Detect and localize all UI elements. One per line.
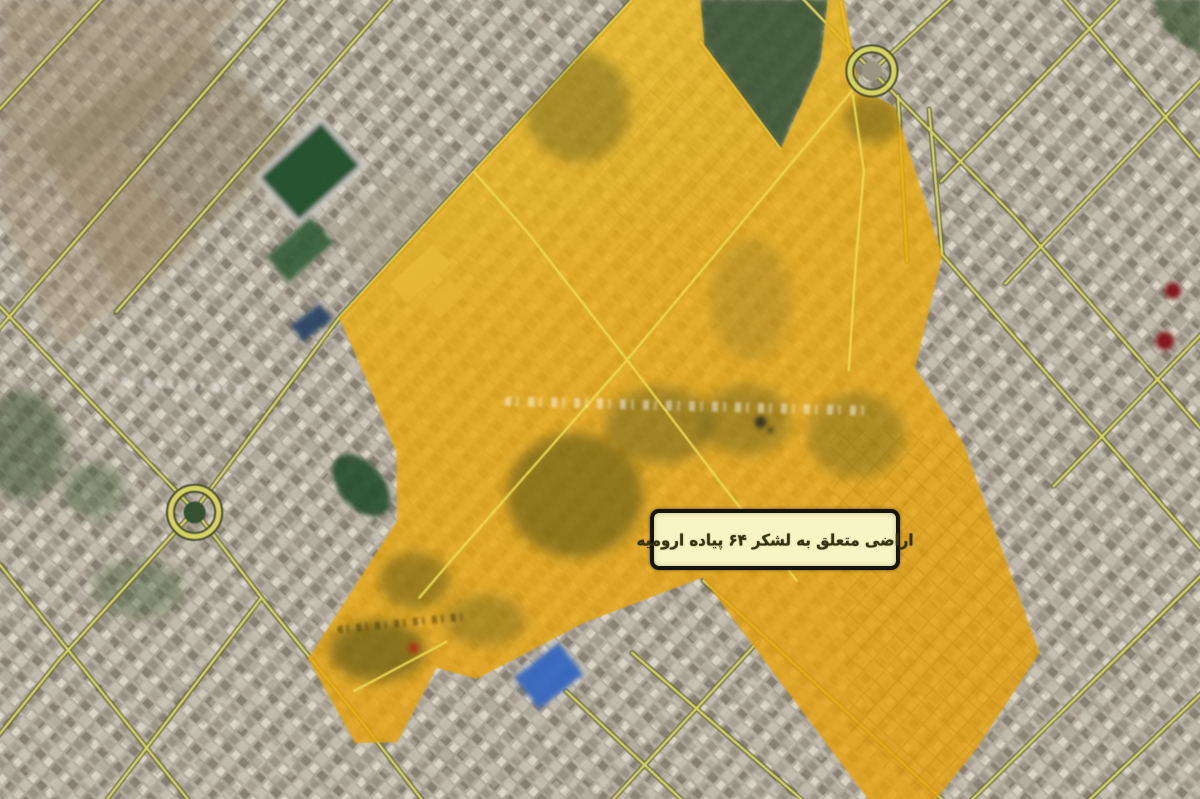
noise-overlay bbox=[0, 0, 1200, 799]
land-ownership-label: اراضی متعلق به لشکر ۶۴ پیاده ارومیه bbox=[650, 509, 900, 570]
land-ownership-label-text: اراضی متعلق به لشکر ۶۴ پیاده ارومیه bbox=[637, 530, 914, 549]
map-graphics bbox=[0, 0, 1200, 799]
satellite-map-image: اراضی متعلق به لشکر ۶۴ پیاده ارومیه bbox=[0, 0, 1200, 799]
